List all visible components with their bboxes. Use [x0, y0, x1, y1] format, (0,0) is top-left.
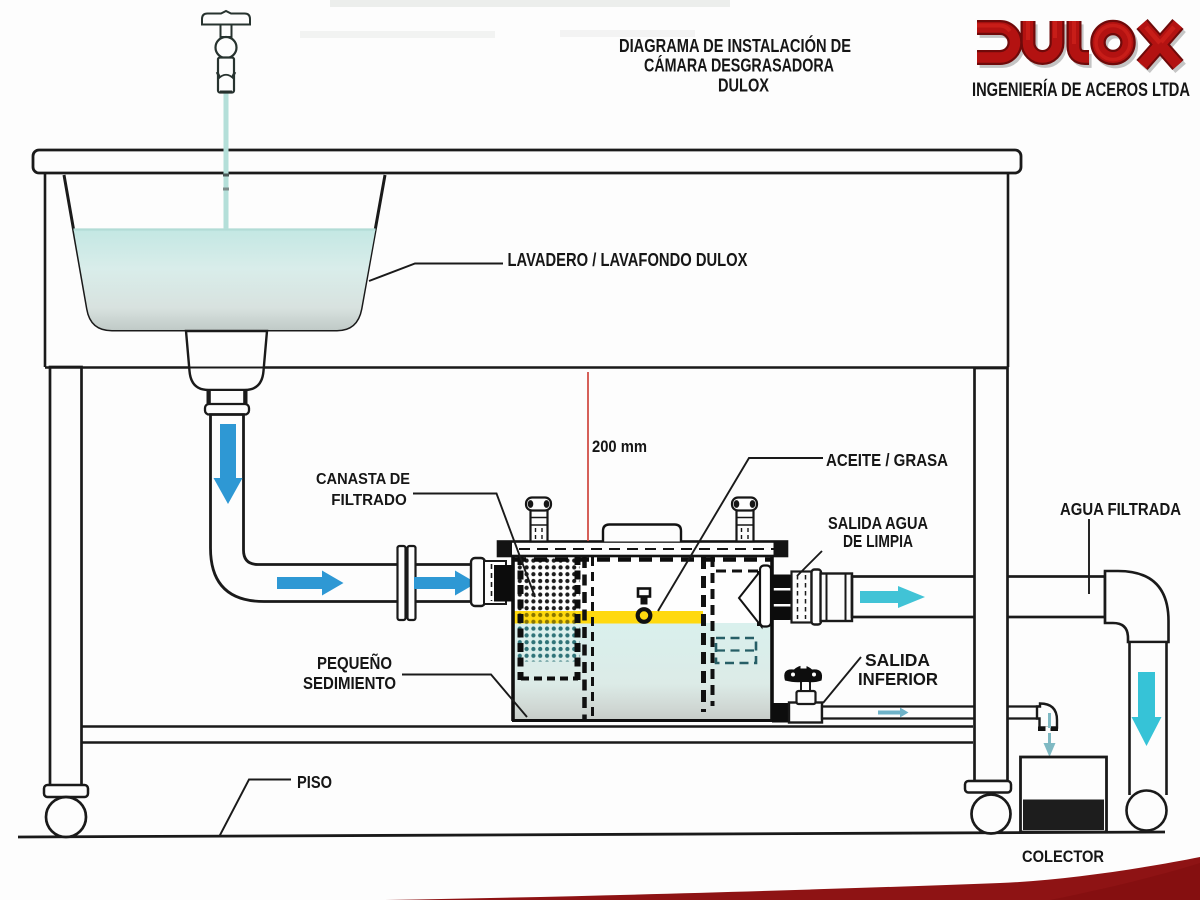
- svg-text:CANASTA DE: CANASTA DE: [316, 471, 410, 488]
- svg-text:SALIDA AGUA: SALIDA AGUA: [828, 513, 928, 533]
- svg-text:INFERIOR: INFERIOR: [858, 669, 938, 689]
- svg-text:COLECTOR: COLECTOR: [1022, 847, 1104, 866]
- svg-text:LAVADERO / LAVAFONDO DULOX: LAVADERO / LAVAFONDO DULOX: [508, 250, 748, 270]
- svg-text:AGUA FILTRADA: AGUA FILTRADA: [1060, 499, 1181, 519]
- svg-text:200 mm: 200 mm: [592, 437, 647, 456]
- svg-text:FILTRADO: FILTRADO: [331, 492, 407, 509]
- svg-text:CÁMARA DESGRASADORA: CÁMARA DESGRASADORA: [644, 55, 834, 76]
- svg-text:PISO: PISO: [297, 772, 332, 792]
- svg-text:SEDIMIENTO: SEDIMIENTO: [303, 673, 396, 693]
- svg-text:PEQUEÑO: PEQUEÑO: [317, 652, 392, 673]
- svg-text:DIAGRAMA DE INSTALACIÓN DE: DIAGRAMA DE INSTALACIÓN DE: [619, 35, 851, 56]
- svg-text:ACEITE / GRASA: ACEITE / GRASA: [826, 450, 948, 470]
- svg-text:SALIDA: SALIDA: [865, 650, 930, 670]
- svg-text:DULOX: DULOX: [718, 75, 770, 96]
- svg-text:INGENIERÍA DE ACEROS LTDA: INGENIERÍA DE ACEROS LTDA: [972, 78, 1190, 101]
- svg-text:DE LIMPIA: DE LIMPIA: [843, 531, 913, 551]
